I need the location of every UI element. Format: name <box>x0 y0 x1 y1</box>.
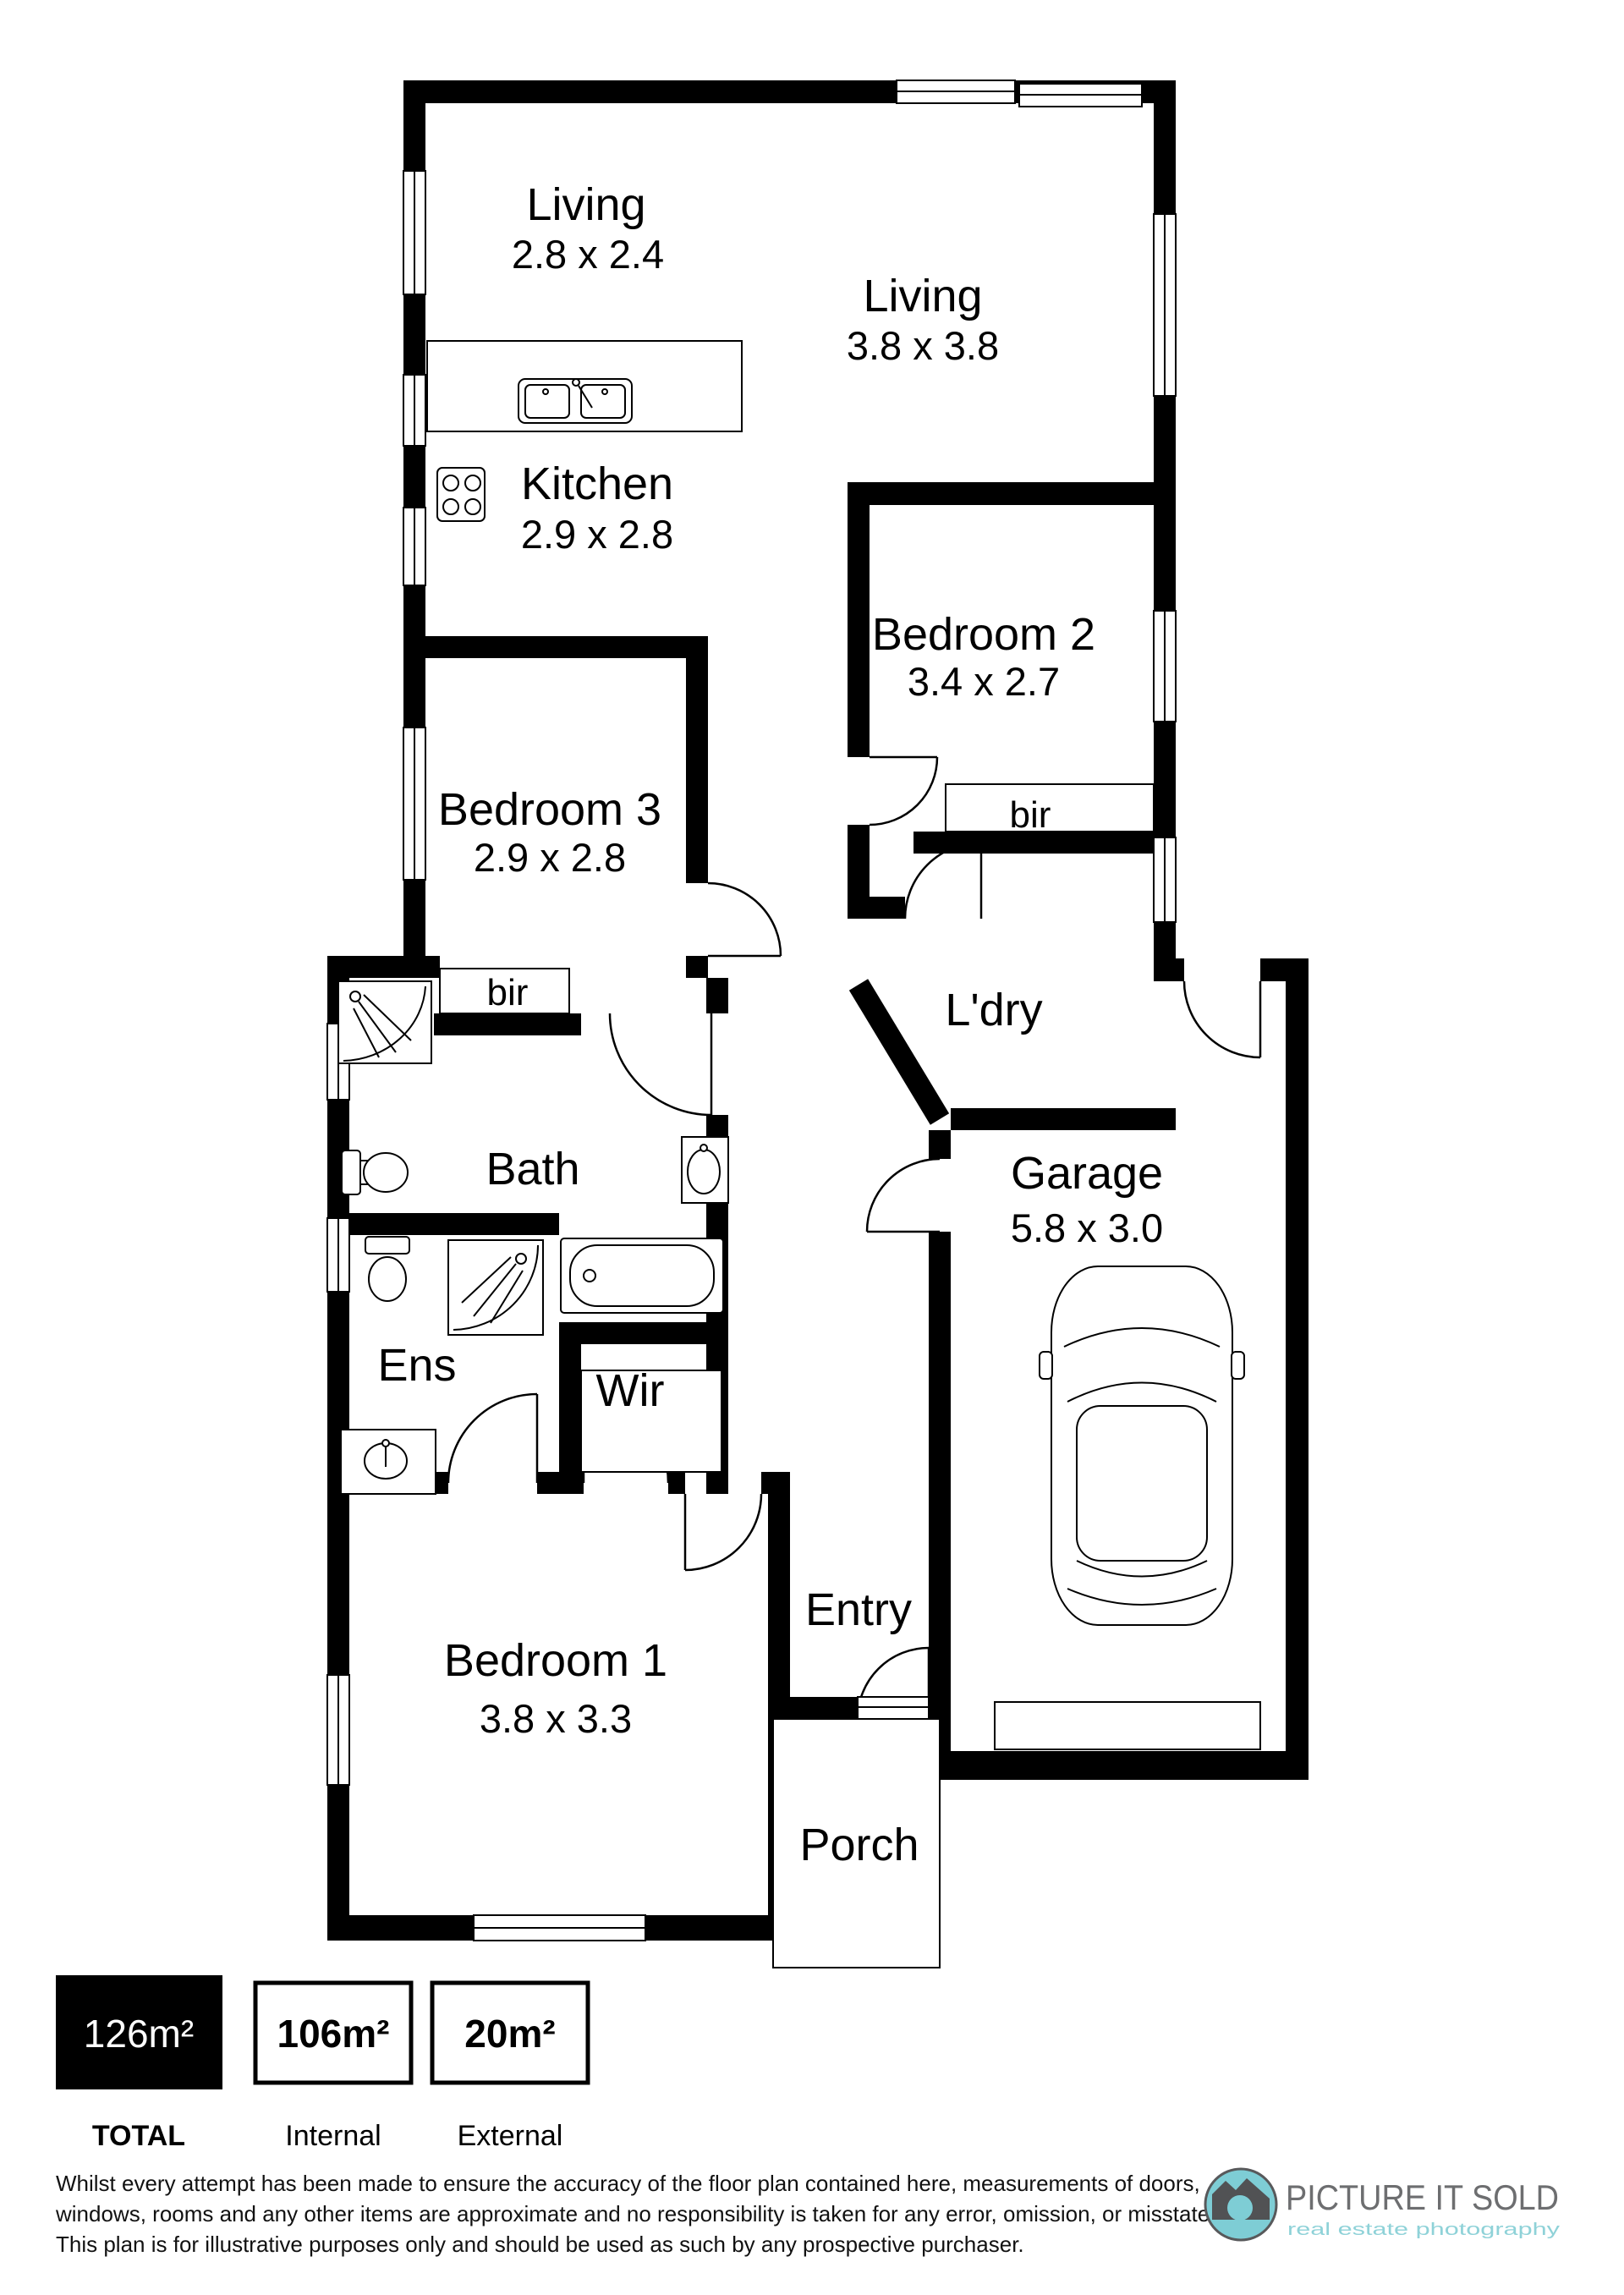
floor-plan-svg: Living 2.8 x 2.4 Living 3.8 x 3.8 Kitche… <box>0 0 1624 2295</box>
label-bir-bedroom3: bir <box>487 972 529 1013</box>
legend-external-label: External <box>458 2120 563 2152</box>
shower-bath-icon <box>338 981 431 1063</box>
dims-bedroom2: 3.4 x 2.7 <box>908 659 1060 704</box>
dims-garage: 5.8 x 3.0 <box>1011 1205 1163 1250</box>
legend-external-value: 20m² <box>464 2012 555 2056</box>
legend-total-label: TOTAL <box>92 2120 185 2152</box>
dims-living1: 2.8 x 2.4 <box>512 232 664 277</box>
label-porch: Porch <box>799 1820 919 1870</box>
camera-lens-icon <box>1227 2195 1253 2221</box>
wall-bottom-c <box>668 1472 685 1494</box>
toilet-bath-icon <box>342 1150 408 1194</box>
window-laundry <box>1154 837 1176 922</box>
wall-bed3-right <box>686 658 708 883</box>
wall-bed2-left-lower <box>848 825 870 897</box>
wall-laundry-door <box>848 897 905 919</box>
window-kitchen-2 <box>403 508 425 585</box>
window-bedroom1-bottom <box>474 1915 645 1941</box>
toilet-ens-icon <box>365 1237 409 1301</box>
garage-door-panel <box>995 1702 1260 1749</box>
wall-bottom-d <box>761 1472 790 1494</box>
label-bedroom3: Bedroom 3 <box>438 784 661 835</box>
disclaimer-line-1: Whilst every attempt has been made to en… <box>56 2171 1200 2196</box>
wall-bottom-b <box>537 1472 584 1494</box>
label-entry: Entry <box>805 1584 912 1635</box>
front-step-1 <box>858 1697 929 1707</box>
window-bedroom2 <box>1154 611 1176 722</box>
opening-garage-entry-door <box>929 1159 951 1232</box>
door-arc-bedroom2 <box>870 757 937 825</box>
floor-plan-page: Living 2.8 x 2.4 Living 3.8 x 3.8 Kitche… <box>0 0 1624 2295</box>
wall-bir3-bottom <box>434 1013 581 1035</box>
disclaimer-line-3: This plan is for illustrative purposes o… <box>56 2232 1024 2257</box>
wall-bed2-left <box>848 482 870 757</box>
logo: PICTURE IT SOLD real estate photography <box>1205 2169 1560 2240</box>
label-ens: Ens <box>377 1340 456 1391</box>
wall-bath-bottom <box>327 1213 559 1235</box>
basin-ens-icon <box>341 1430 436 1494</box>
kitchen-sink-icon <box>518 379 632 423</box>
label-bath: Bath <box>486 1144 579 1194</box>
door-arc-bath <box>610 1013 711 1115</box>
legend-total-value: 126m² <box>84 2012 194 2056</box>
wall-entry-bottom <box>790 1697 858 1719</box>
window-top-2 <box>1019 84 1142 107</box>
window-bedroom1-left <box>327 1675 349 1785</box>
legend-internal-label: Internal <box>285 2120 381 2152</box>
window-ens <box>327 1218 349 1292</box>
label-kitchen: Kitchen <box>521 458 673 509</box>
wall-laundry-angled <box>859 985 940 1119</box>
label-bir-bedroom2: bir <box>1010 794 1051 836</box>
shower-ens-icon <box>448 1240 543 1335</box>
wall-bed3-stub <box>686 956 708 978</box>
stove-icon <box>437 468 485 521</box>
wall-bed2-top <box>848 482 1154 505</box>
label-laundry: L'dry <box>945 985 1042 1035</box>
dims-bedroom3: 2.9 x 2.8 <box>474 835 626 880</box>
dims-living2: 3.8 x 3.8 <box>847 323 999 368</box>
opening-garage-rear-door <box>1184 958 1260 981</box>
wall-garage-right <box>1286 958 1309 1780</box>
front-step-2 <box>858 1707 929 1719</box>
area-legend: 126m² TOTAL 106m² Internal 20m² External <box>56 1975 588 2152</box>
label-bedroom2: Bedroom 2 <box>872 609 1095 660</box>
label-living1: Living <box>526 179 645 230</box>
opening-bath-door <box>706 1013 728 1115</box>
label-living2: Living <box>863 271 982 321</box>
window-living2 <box>1154 214 1176 396</box>
label-bedroom1: Bedroom 1 <box>444 1635 667 1686</box>
window-bedroom3 <box>403 727 425 880</box>
dims-kitchen: 2.9 x 2.8 <box>521 512 673 557</box>
door-arc-garage-rear <box>1184 981 1260 1057</box>
disclaimer-text: Whilst every attempt has been made to en… <box>55 2171 1265 2257</box>
car-icon <box>1040 1266 1244 1625</box>
logo-name: PICTURE IT SOLD <box>1286 2177 1559 2217</box>
disclaimer-line-2: windows, rooms and any other items are a… <box>55 2201 1265 2226</box>
label-wir: Wir <box>596 1365 665 1416</box>
door-arc-bedroom3 <box>708 883 781 956</box>
logo-tagline: real estate photography <box>1287 2221 1560 2239</box>
label-garage: Garage <box>1011 1148 1163 1199</box>
bathtub-icon <box>561 1238 723 1313</box>
wall-ens-wir-divider <box>559 1344 581 1494</box>
window-kitchen-1 <box>403 375 425 446</box>
door-arc-ens <box>448 1394 537 1483</box>
door-arc-bedroom1 <box>685 1494 761 1570</box>
wall-kitchen-bed3 <box>403 636 708 658</box>
window-top-1 <box>897 80 1015 103</box>
dims-bedroom1: 3.8 x 3.3 <box>480 1696 632 1741</box>
wall-wir-top <box>559 1322 728 1344</box>
garage-fixtures <box>991 1266 1264 1765</box>
door-arc-laundry <box>905 843 981 919</box>
window-living1 <box>403 171 425 294</box>
legend-internal-value: 106m² <box>277 2012 390 2056</box>
wall-garage-top <box>951 1108 1176 1130</box>
basin-bath-icon <box>682 1137 728 1203</box>
